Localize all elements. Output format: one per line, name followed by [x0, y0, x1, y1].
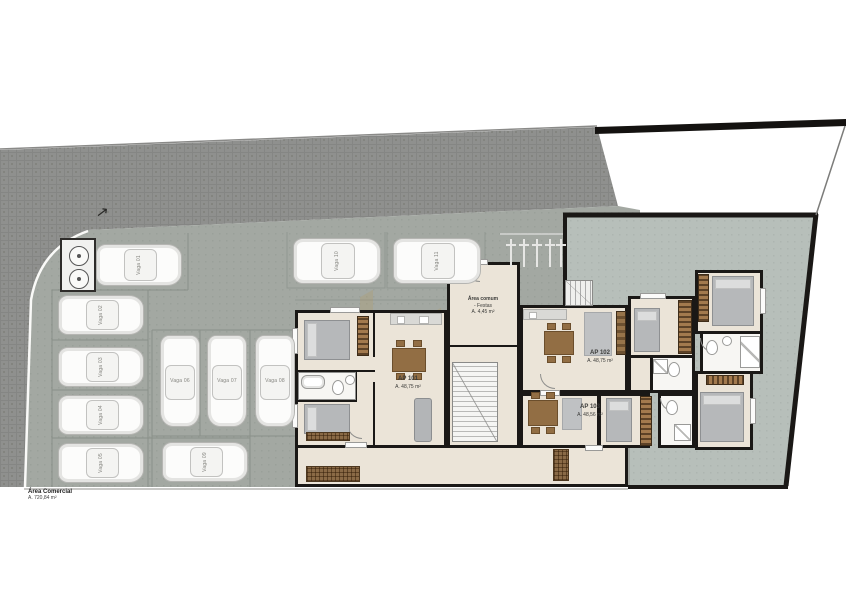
- apartment-area: A. 48,75 m²: [572, 358, 628, 365]
- exterior-steps: [565, 280, 593, 306]
- parked-car: Vaga 05: [56, 442, 146, 484]
- chair: [546, 427, 555, 434]
- entrance-arrow-icon: ↗: [95, 202, 110, 222]
- planter: [306, 466, 360, 482]
- common-area-label: Área comum - Festas A. 4,45 m²: [452, 296, 514, 316]
- wardrobe: [306, 432, 350, 441]
- stove: [419, 316, 429, 324]
- bed: [634, 308, 660, 352]
- parking-space-label: Vaga 07: [217, 378, 237, 384]
- dining-table: [528, 400, 558, 426]
- apartment-102-hall: [628, 355, 653, 393]
- apartment-name: AP 103: [562, 404, 618, 412]
- parked-car: Vaga 01: [94, 243, 184, 287]
- parking-space-label: Vaga 08: [265, 378, 285, 384]
- toilet: [668, 362, 680, 377]
- chair: [547, 323, 556, 330]
- window: [750, 398, 756, 424]
- parked-car: Vaga 09: [160, 441, 250, 483]
- bathtub: [301, 375, 325, 389]
- kitchen-counter: [523, 309, 567, 320]
- motorcycle-icon: [506, 237, 516, 269]
- wardrobe: [678, 300, 692, 354]
- cabinet: [616, 311, 626, 355]
- motorcycle-icon: [519, 237, 529, 269]
- chair: [546, 392, 555, 399]
- wardrobe: [706, 375, 744, 385]
- interior-wall: [298, 400, 357, 402]
- apartment-name: AP 102: [572, 350, 628, 358]
- parked-car: Vaga 03: [56, 346, 146, 388]
- parked-car: Vaga 11: [391, 237, 483, 285]
- parking-space-label: Vaga 01: [136, 255, 142, 275]
- utility-cistern-box: [60, 238, 96, 292]
- motorcycle-icon: [532, 237, 542, 269]
- apartment-name: AP 101: [380, 376, 436, 384]
- floor-plan-canvas: ↗: [0, 0, 848, 600]
- chair: [531, 427, 540, 434]
- bed: [304, 320, 350, 360]
- staircase: [452, 362, 498, 442]
- cistern-icon: [69, 246, 89, 266]
- toilet: [706, 340, 718, 355]
- parking-space-label: Vaga 03: [98, 357, 104, 377]
- parking-space-label: Vaga 10: [334, 251, 340, 271]
- chair: [547, 356, 556, 363]
- chair: [562, 323, 571, 330]
- parked-car: Vaga 06: [159, 333, 201, 429]
- parking-space-label: Vaga 05: [98, 453, 104, 473]
- parking-space-label: Vaga 02: [98, 305, 104, 325]
- planter: [553, 449, 569, 481]
- top-boundary-bar: [595, 119, 846, 134]
- parking-space-label: Vaga 09: [202, 452, 208, 472]
- kitchen-sink: [529, 312, 537, 319]
- dining-table: [392, 348, 426, 372]
- chair: [413, 340, 422, 347]
- interior-wall: [450, 345, 517, 347]
- door-opening: [345, 442, 367, 448]
- toilet: [666, 400, 678, 415]
- sink: [722, 336, 732, 346]
- parked-car: Vaga 10: [291, 237, 383, 285]
- wardrobe: [640, 396, 652, 446]
- kitchen-counter: [390, 313, 442, 325]
- chair: [396, 340, 405, 347]
- interior-wall: [373, 382, 375, 445]
- apartment-area: A. 48,75 m²: [380, 384, 436, 391]
- bed: [304, 404, 350, 434]
- boundary-thin-line: [816, 126, 845, 215]
- kitchen-sink: [397, 316, 405, 324]
- commercial-area-label: Área Comercial A. 720,84 m²: [28, 489, 72, 501]
- motorcycle-icon: [545, 237, 555, 269]
- apartment-101-label: AP 101 A. 48,75 m²: [380, 376, 436, 390]
- motorcycle-icon: [556, 237, 566, 269]
- wardrobe: [698, 274, 709, 322]
- dining-table: [544, 331, 574, 355]
- parking-space-label: Vaga 06: [170, 378, 190, 384]
- shower: [740, 336, 760, 368]
- common-area-size: A. 4,45 m²: [452, 309, 514, 316]
- parking-space-label: Vaga 04: [98, 405, 104, 425]
- parking-space-label: Vaga 11: [434, 251, 440, 270]
- chair: [531, 392, 540, 399]
- shower: [653, 359, 668, 374]
- apartment-area: A. 48,56 m²: [562, 412, 618, 419]
- window: [760, 288, 766, 314]
- apartment-102-label: AP 102 A. 48,75 m²: [572, 350, 628, 364]
- apartment-103-label: AP 103 A. 48,56 m²: [562, 404, 618, 418]
- door-opening: [585, 445, 603, 451]
- shower: [674, 424, 691, 441]
- chair: [562, 356, 571, 363]
- sofa: [414, 398, 432, 442]
- window: [640, 293, 666, 299]
- window: [330, 307, 360, 313]
- bed: [700, 392, 744, 442]
- interior-wall: [373, 313, 375, 357]
- parked-car: Vaga 07: [206, 333, 248, 429]
- cistern-icon: [69, 269, 89, 289]
- commercial-area-size: A. 720,84 m²: [28, 495, 72, 501]
- toilet: [332, 380, 344, 395]
- bed: [712, 276, 754, 326]
- parked-car: Vaga 08: [254, 333, 296, 429]
- wardrobe: [357, 316, 369, 356]
- sink: [345, 375, 355, 385]
- parked-car: Vaga 04: [56, 394, 146, 436]
- parked-car: Vaga 02: [56, 294, 146, 336]
